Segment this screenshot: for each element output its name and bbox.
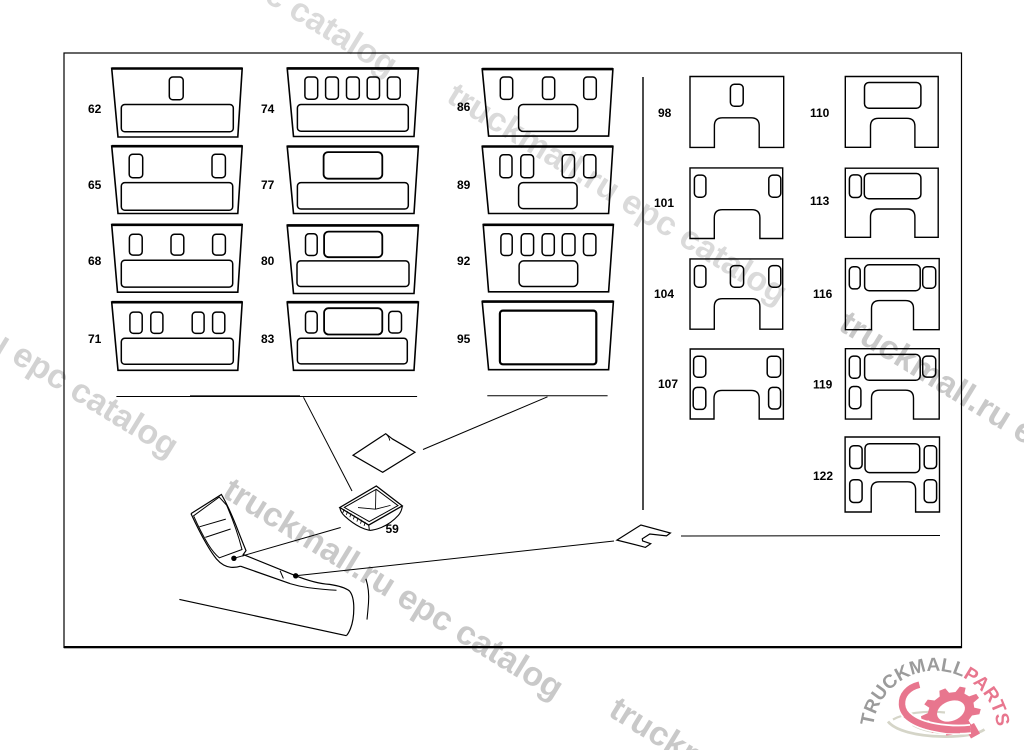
svg-text:86: 86 — [457, 100, 471, 114]
svg-text:80: 80 — [261, 254, 275, 268]
svg-text:98: 98 — [658, 106, 672, 120]
svg-text:113: 113 — [810, 194, 830, 208]
svg-text:89: 89 — [457, 178, 471, 192]
svg-text:104: 104 — [654, 287, 674, 301]
svg-text:truckmall.ru epc catalog: truckmall.ru epc catalog — [441, 75, 794, 312]
svg-text:68: 68 — [88, 254, 102, 268]
svg-text:101: 101 — [654, 196, 674, 210]
svg-text:74: 74 — [261, 102, 275, 116]
svg-text:110: 110 — [810, 106, 830, 120]
svg-text:119: 119 — [813, 378, 833, 392]
svg-text:77: 77 — [261, 178, 275, 192]
svg-text:95: 95 — [457, 332, 471, 346]
svg-text:truckmall.ru epc catalog: truckmall.ru epc catalog — [217, 470, 570, 707]
svg-text:83: 83 — [261, 332, 275, 346]
svg-text:116: 116 — [813, 287, 833, 301]
svg-text:122: 122 — [813, 469, 833, 483]
svg-text:92: 92 — [457, 254, 471, 268]
svg-text:65: 65 — [88, 178, 102, 192]
svg-text:59: 59 — [386, 522, 400, 536]
svg-text:62: 62 — [88, 102, 102, 116]
svg-text:truckmall.ru epc catalog: truckmall.ru epc catalog — [833, 303, 1024, 540]
svg-text:71: 71 — [88, 332, 102, 346]
svg-text:truckmall.ru epc catalog: truckmall.ru epc catalog — [51, 0, 404, 84]
svg-text:107: 107 — [658, 377, 678, 391]
